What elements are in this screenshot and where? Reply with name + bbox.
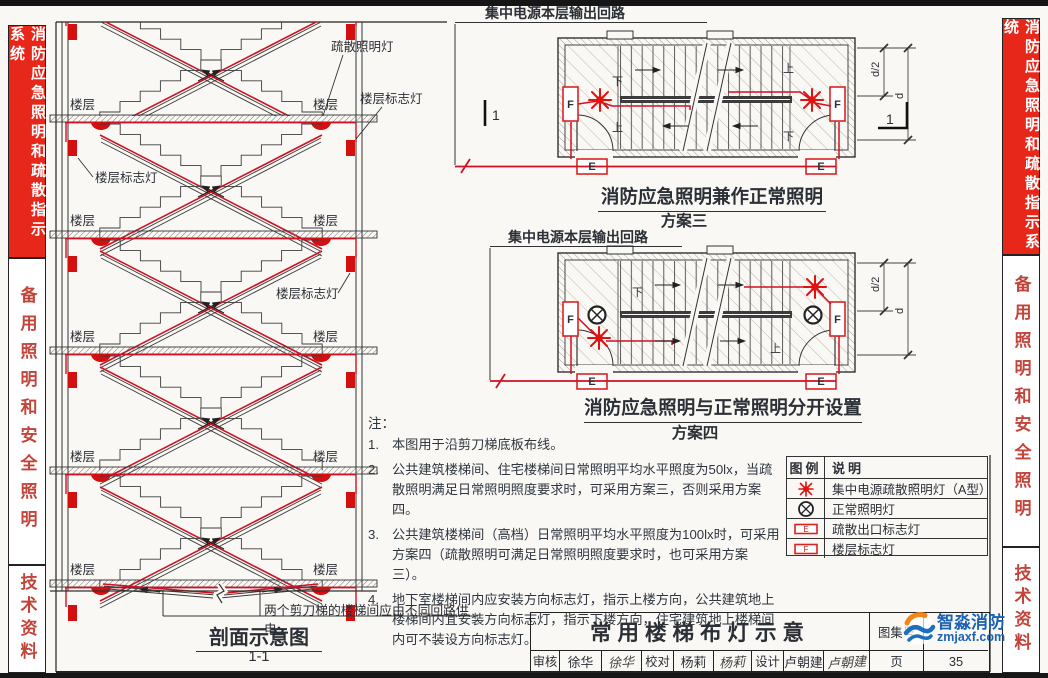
watermark-brand: 智淼消防 [937,614,1005,631]
drawing-title: 常用楼梯布灯示意 [531,613,869,650]
floor-sign-label: 楼层标志灯 [276,286,339,301]
exit-sign-box-label: E [588,376,595,388]
note-text: 本图用于沿剪刀梯底板布线。 [392,435,780,455]
normal-light-symbol [805,307,822,324]
a-type-luminaire-symbol [804,276,826,298]
evac-light-label: 疏散照明灯 [331,39,394,54]
exit-sign-icon: E [793,522,819,536]
floor-sign-label: 楼层标志灯 [95,170,158,185]
circuit-label-text: 集中电源本层输出回路 [485,5,625,21]
floor-sign-box-label: F [567,314,574,326]
watermark: 智淼消防 zmjaxf.com [899,610,1005,648]
legend-header-desc: 说明 [824,457,987,478]
legend-row: 集中电源疏散照明灯（A型） [824,478,987,498]
legend-row: 楼层标志灯 [824,538,987,558]
section-subtitle: 1-1 [196,649,322,665]
floor-label: 楼层 [70,449,95,464]
normal-light-symbol [589,307,606,324]
a-type-evac-luminaire-icon [793,480,819,498]
floor-label: 楼层 [70,329,95,344]
floor-sign-label: 楼层标志灯 [360,91,423,106]
sidebar-left-system-title: 消防应急照明和疏散指示系统 [8,25,46,258]
down-direction-label: 下 [632,287,643,299]
svg-text:F: F [803,545,808,554]
up-direction-label: 上 [783,62,794,75]
note-item: 2. 公共建筑楼梯间、住宅楼梯间日常照明平均水平照度为50lx，当疏散照明满足日… [368,460,780,520]
reviewer-label: 审核 [531,650,559,671]
note-number: 1. [368,435,392,455]
reviewer-name: 徐华 [559,650,601,671]
note-number: 4. [368,590,392,650]
checker-label: 校对 [641,650,673,671]
normal-luminaire-icon [796,500,816,518]
floor-sign-box-label: F [834,99,841,111]
floor-label: 楼层 [313,449,338,464]
signature: 杨莉 [719,651,746,672]
legend-desc: 集中电源疏散照明灯（A型） [832,479,987,498]
atlas-page: 楼层 楼层 楼层 楼层 楼层 楼层 楼层 楼层 楼层 楼层 疏散照明灯 楼层标志… [0,0,1048,678]
sidebar-left-backup-title: 备用照明和安全照明 [8,258,46,565]
note-item: 3. 公共建筑楼梯间（高档）日常照明平均水平照度为100lx时，可采用方案四（疏… [368,525,780,585]
checker-signature: 杨莉 [713,650,751,671]
circuit-label-text: 集中电源本层输出回路 [508,229,648,245]
dimension-full-label: d [894,93,906,99]
legend-symbol-exit: E [787,518,824,538]
legend-desc: 疏散出口标志灯 [832,519,920,538]
note-number: 2. [368,460,392,520]
circuit-label-plan3: 集中电源本层输出回路 [455,3,707,23]
a-type-luminaire-symbol [588,327,610,349]
sidebar-left-tech-title: 技术资料 [8,565,46,673]
legend-symbol-floor: F [787,538,824,558]
sidebar-right-backup-title: 备用照明和安全照明 [1002,255,1040,547]
sidebar-right-tech-title: 技术资料 [1002,547,1040,673]
a-type-luminaire-symbol [589,89,611,111]
stair-plan-room [558,246,916,389]
exit-sign-box-label: E [817,161,824,173]
watermark-logo-icon [899,610,937,648]
legend-symbol-a-type [787,478,824,498]
page-label: 页 [869,650,923,671]
up-direction-label: 上 [612,121,623,134]
floor-label: 楼层 [313,329,338,344]
up-direction-label: 上 [770,342,781,355]
floor-label: 楼层 [313,97,338,112]
section-cut-number: 1 [492,107,500,123]
legend-symbol-normal [787,498,824,518]
legend-row: 疏散出口标志灯 [824,518,987,538]
notes-heading: 注： [368,414,780,434]
section-title: 剖面示意图 [196,621,322,652]
note-number: 3. [368,525,392,585]
photo-border-top [0,0,1048,6]
exit-sign-box-label: E [588,161,595,173]
plan-scheme4: 下 上 F F E E d/2 d [490,246,916,389]
signature: 卢朝建 [826,650,866,672]
plan3-title: 消防应急照明兼作正常照明 [598,183,826,212]
svg-text:E: E [803,525,808,534]
plan3-scheme: 方案三 [570,209,798,231]
legend-desc: 正常照明灯 [832,499,895,518]
watermark-domain: zmjaxf.com [937,631,1005,644]
checker-name: 杨莉 [673,650,713,671]
photo-border-bottom [0,673,1048,678]
floor-label: 楼层 [313,213,338,228]
legend-desc: 楼层标志灯 [832,539,895,558]
floor-label: 楼层 [70,97,95,112]
floor-sign-box-label: F [834,314,841,326]
plan-scheme3: 下 上 上 下 F F E E d/2 d 1 1 [455,24,916,174]
designer-signature: 卢朝建 [823,650,869,671]
floor-label: 楼层 [70,562,95,577]
note-item: 1. 本图用于沿剪刀梯底板布线。 [368,435,780,455]
section-cut-number: 1 [886,111,894,127]
dimension-full-label: d [894,308,906,314]
a-type-luminaire-symbol [801,89,823,111]
down-direction-label: 下 [783,131,794,143]
legend-header-symbol: 图例 [787,457,824,478]
signature: 徐华 [608,651,635,672]
floor-sign-icon: F [793,542,819,556]
floor-label: 楼层 [70,213,95,228]
reviewer-signature: 徐华 [601,650,641,671]
note-text: 公共建筑楼梯间（高档）日常照明平均水平照度为100lx时，可采用方案四（疏散照明… [392,525,780,585]
note-text: 公共建筑楼梯间、住宅楼梯间日常照明平均水平照度为50lx，当疏散照明满足日常照明… [392,460,780,520]
sidebar-right-system-title: 消防应急照明和疏散指示系统 [1002,18,1040,255]
legend-table: 图例 说明 集中电源疏散照明灯（A型） 正常照明灯 E [786,456,988,556]
dimension-half-label: d/2 [870,277,882,292]
stair-plan-room [558,31,916,174]
floor-label: 楼层 [313,562,338,577]
legend-row: 正常照明灯 [824,498,987,518]
exit-sign-box-label: E [817,376,824,388]
page-number: 35 [923,650,988,671]
designer-label: 设计 [751,650,783,671]
floor-sign-box-label: F [567,99,574,111]
down-direction-label: 下 [612,76,623,88]
dimension-half-label: d/2 [870,62,882,77]
designer-name: 卢朝建 [783,650,823,671]
